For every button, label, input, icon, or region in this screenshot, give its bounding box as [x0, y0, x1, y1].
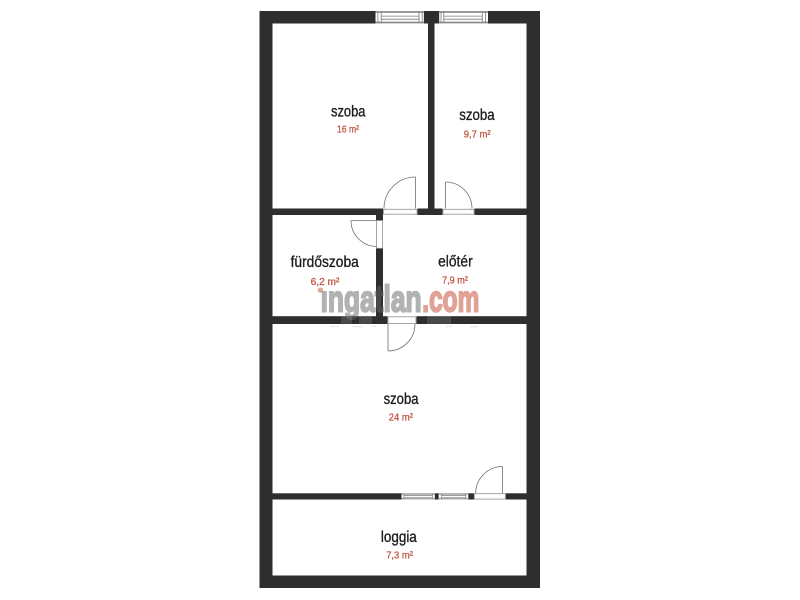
svg-text:7,9 m²: 7,9 m²	[442, 275, 468, 287]
svg-text:16 m²: 16 m²	[337, 124, 359, 136]
svg-text:fürdőszoba: fürdőszoba	[291, 254, 360, 271]
svg-text:szoba: szoba	[459, 107, 495, 124]
svg-text:24 m²: 24 m²	[389, 412, 414, 424]
svg-text:loggia: loggia	[381, 529, 417, 546]
svg-text:szoba: szoba	[384, 391, 419, 408]
svg-text:szoba: szoba	[331, 104, 366, 121]
svg-text:előtér: előtér	[438, 253, 473, 270]
svg-text:7,3 m²: 7,3 m²	[386, 550, 413, 562]
svg-text:6,2 m²: 6,2 m²	[311, 276, 340, 288]
svg-text:9,7 m²: 9,7 m²	[464, 128, 491, 140]
